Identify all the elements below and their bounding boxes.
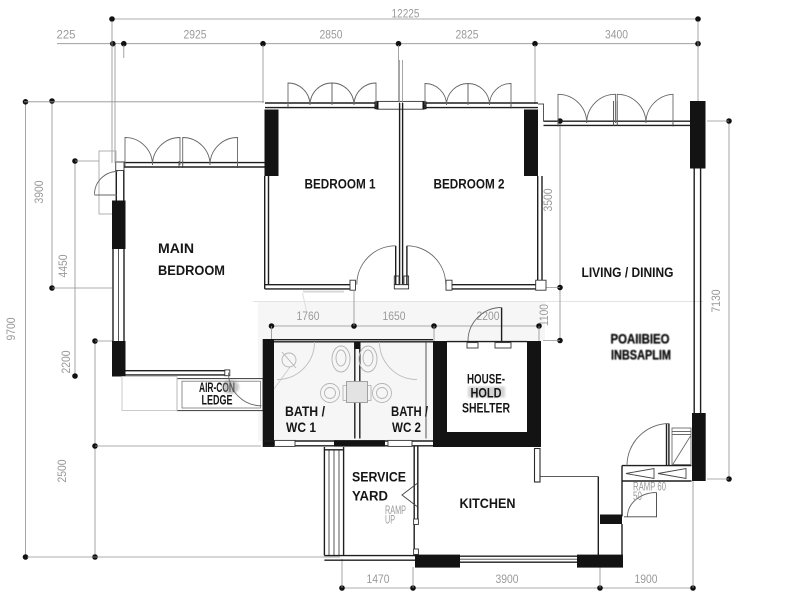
svg-text:1470: 1470 — [367, 572, 390, 586]
svg-text:2500: 2500 — [55, 459, 69, 482]
svg-text:KITCHEN: KITCHEN — [460, 496, 516, 511]
svg-text:225: 225 — [57, 28, 76, 42]
svg-text:1650: 1650 — [383, 309, 406, 323]
svg-text:HOUSE-: HOUSE- — [467, 372, 505, 387]
svg-text:12225: 12225 — [392, 7, 420, 21]
svg-text:2825: 2825 — [456, 28, 479, 42]
svg-text:WC 2: WC 2 — [392, 420, 421, 435]
svg-text:4450: 4450 — [56, 254, 70, 277]
svg-text:1100: 1100 — [537, 304, 551, 326]
svg-text:MAIN: MAIN — [158, 241, 194, 256]
svg-text:WC 1: WC 1 — [286, 420, 316, 435]
svg-text:HOLD: HOLD — [471, 386, 502, 401]
svg-text:BEDROOM: BEDROOM — [158, 263, 225, 278]
svg-text:LIVING / DINING: LIVING / DINING — [582, 265, 674, 280]
svg-text:UP: UP — [385, 513, 395, 527]
svg-text:3400: 3400 — [605, 28, 628, 42]
svg-text:YARD: YARD — [352, 489, 388, 504]
svg-text:SERVICE: SERVICE — [352, 470, 406, 485]
svg-text:POAIIBIEO: POAIIBIEO — [611, 332, 670, 347]
svg-text:BEDROOM 2: BEDROOM 2 — [434, 177, 505, 192]
svg-text:BATH /: BATH / — [391, 404, 428, 419]
svg-text:1900: 1900 — [635, 572, 658, 586]
svg-text:SHELTER: SHELTER — [462, 401, 510, 416]
svg-text:9700: 9700 — [4, 317, 18, 340]
svg-text:3900: 3900 — [496, 572, 519, 586]
svg-text:BEDROOM 1: BEDROOM 1 — [305, 177, 376, 192]
svg-text:INBSAPLIM: INBSAPLIM — [611, 347, 671, 363]
svg-text:BATH /: BATH / — [285, 404, 325, 419]
svg-text:LEDGE: LEDGE — [202, 393, 233, 408]
svg-text:2200: 2200 — [59, 350, 73, 373]
svg-text:7130: 7130 — [709, 289, 723, 312]
svg-text:3900: 3900 — [32, 180, 46, 203]
svg-text:3500: 3500 — [541, 188, 555, 211]
svg-text:50: 50 — [633, 489, 642, 503]
svg-text:1760: 1760 — [297, 309, 320, 323]
svg-text:2925: 2925 — [184, 28, 207, 42]
svg-text:2200: 2200 — [477, 309, 500, 323]
svg-text:2850: 2850 — [320, 28, 343, 42]
